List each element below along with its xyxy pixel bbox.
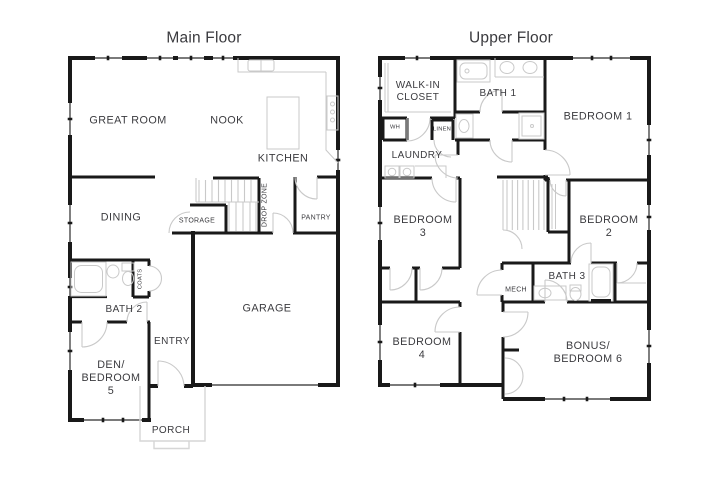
label-bedroom-4: BEDROOM 4 bbox=[393, 336, 452, 362]
upper-floor-stairs bbox=[503, 180, 544, 249]
label-bedroom-2: BEDROOM 2 bbox=[580, 214, 639, 240]
label-bedroom-1: BEDROOM 1 bbox=[564, 110, 633, 123]
label-coats: COATS bbox=[137, 269, 144, 290]
label-entry: ENTRY bbox=[154, 336, 190, 348]
label-laundry: LAUNDRY bbox=[392, 150, 443, 162]
label-den-bedroom-5: DEN/ BEDROOM 5 bbox=[82, 359, 141, 399]
label-wh: WH bbox=[390, 124, 400, 131]
label-pantry: PANTRY bbox=[301, 215, 331, 224]
label-porch: PORCH bbox=[152, 425, 190, 437]
label-great-room: GREAT ROOM bbox=[89, 114, 166, 127]
main-floor-doors bbox=[82, 177, 317, 386]
upper-floor-title: Upper Floor bbox=[469, 30, 553, 49]
label-mech: MECH bbox=[505, 287, 527, 296]
label-drop-zone: DROP ZONE bbox=[262, 183, 271, 227]
label-walk-in-closet: WALK-IN CLOSET bbox=[396, 80, 440, 104]
label-bath-3: BATH 3 bbox=[549, 271, 586, 283]
label-garage: GARAGE bbox=[243, 302, 292, 315]
label-kitchen: KITCHEN bbox=[258, 152, 309, 165]
label-nook: NOOK bbox=[210, 114, 244, 127]
label-linen: LINEN bbox=[433, 126, 451, 133]
label-bath-2: BATH 2 bbox=[106, 304, 143, 316]
label-bonus-bedroom-6: BONUS/ BEDROOM 6 bbox=[554, 340, 623, 366]
floorplan-canvas: Main Floor GREAT ROOM NOOK KITCHEN DININ… bbox=[0, 0, 720, 479]
label-storage: STORAGE bbox=[179, 218, 215, 227]
label-dining: DINING bbox=[101, 211, 142, 224]
main-floor-title: Main Floor bbox=[166, 30, 241, 49]
label-bath-1: BATH 1 bbox=[480, 88, 517, 100]
label-bedroom-3: BEDROOM 3 bbox=[394, 214, 453, 240]
